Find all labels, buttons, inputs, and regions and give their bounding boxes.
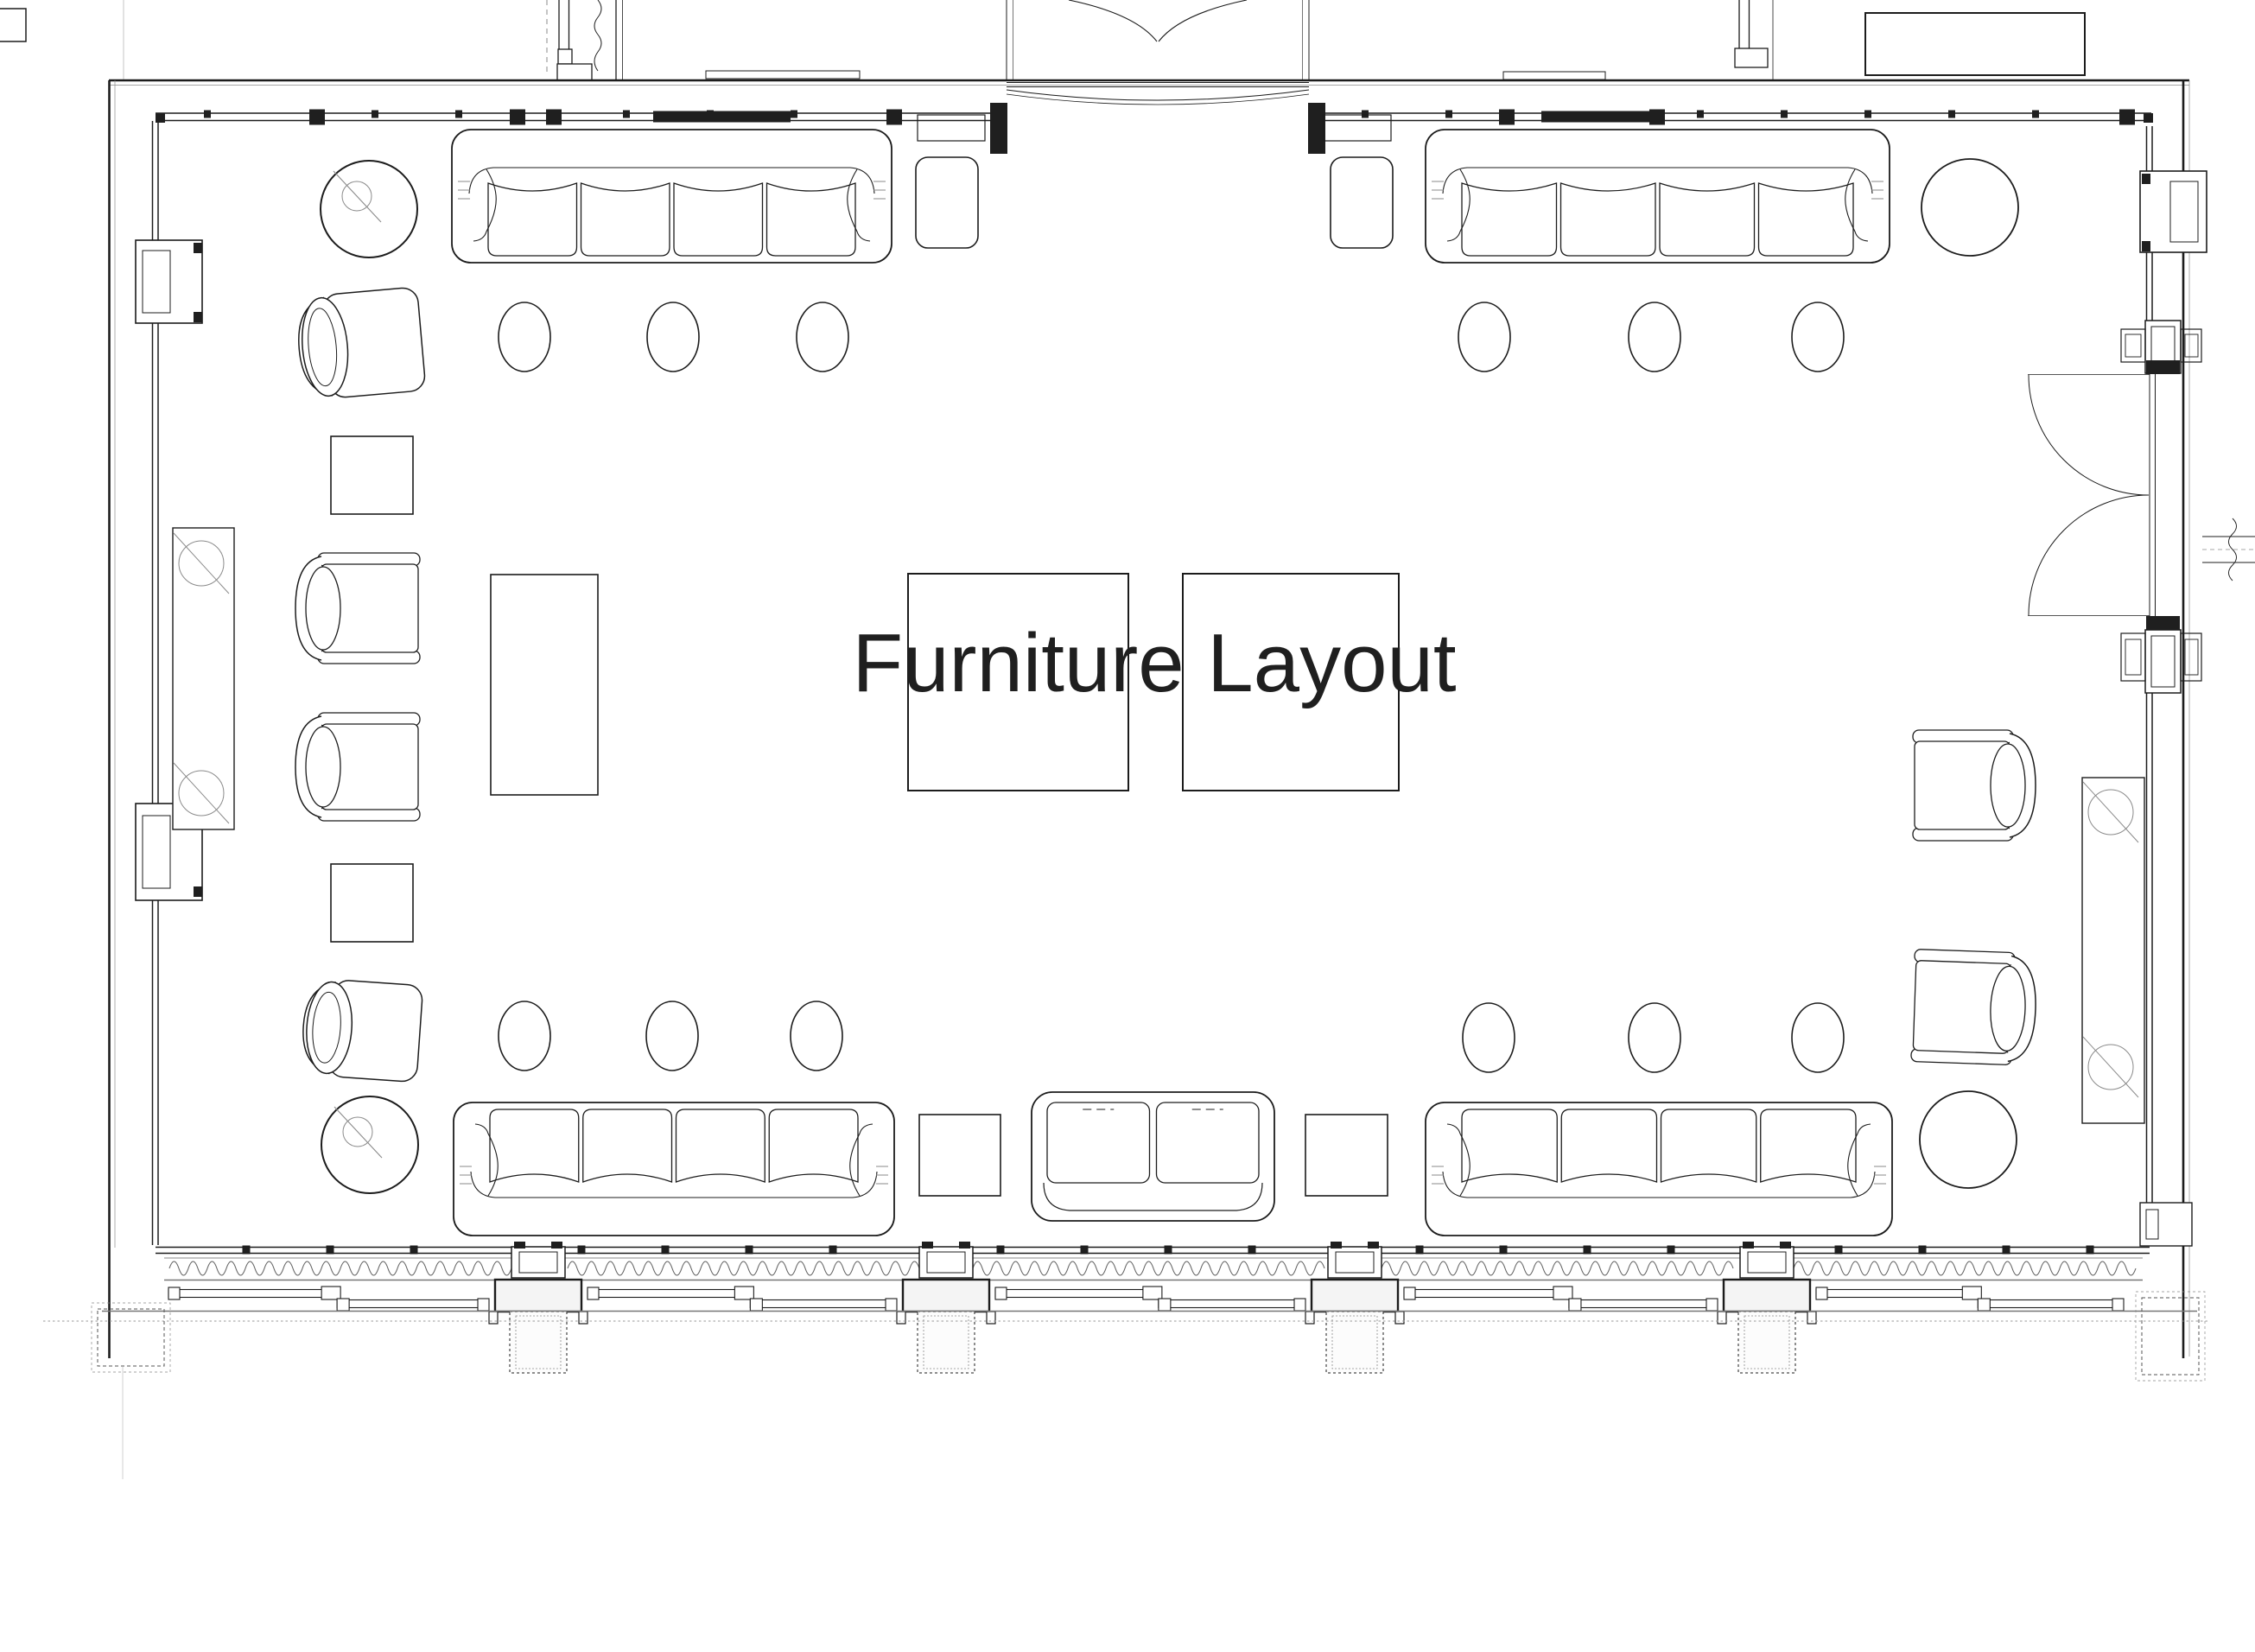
- sofa-cushion: [1561, 1109, 1656, 1182]
- side-table-square: [1305, 1115, 1388, 1196]
- top-door-jamb: [1308, 103, 1325, 154]
- jamb-wing-inner: [2125, 334, 2141, 357]
- armchair: [295, 713, 420, 821]
- side-table-square: [331, 436, 413, 514]
- door-niche: [1324, 115, 1391, 141]
- sofa-cushion: [488, 183, 577, 256]
- sofa-cushion: [1761, 1109, 1856, 1182]
- rect: [489, 1312, 498, 1324]
- rect: [903, 1280, 989, 1312]
- door-niche: [918, 115, 985, 141]
- rooftop-canopy: [1865, 13, 2085, 75]
- rect: [922, 1242, 933, 1249]
- frame-dark: [2142, 241, 2150, 251]
- rect: [1312, 1280, 1398, 1312]
- glazing-ticks-bottom: [746, 1246, 753, 1255]
- sill-frames: [1404, 1287, 1718, 1311]
- rect: [478, 1299, 489, 1311]
- rect: [1305, 1312, 1314, 1324]
- rect: [1159, 1299, 1171, 1311]
- corner-dark: [2144, 113, 2153, 123]
- stool: [1792, 1003, 1844, 1072]
- rect: [1706, 1299, 1718, 1311]
- partition-block: [558, 49, 572, 64]
- frame-dark: [194, 886, 202, 897]
- rect: [337, 1299, 349, 1311]
- jamb-wing-inner: [2125, 639, 2141, 675]
- stool: [1629, 1003, 1680, 1072]
- glazing-ticks-top: [1948, 111, 1955, 118]
- sill-frames: [168, 1287, 489, 1311]
- glazing-ticks-top: [455, 111, 462, 118]
- glazing-ticks-bottom: [1165, 1246, 1172, 1255]
- armchair: [295, 553, 420, 664]
- rect: [1780, 1242, 1791, 1249]
- foundation-pier: [1305, 1280, 1404, 1373]
- sofa-cushion: [1462, 1109, 1557, 1182]
- armchair: [1913, 730, 2036, 841]
- glazing-ticks-bottom: [1081, 1246, 1089, 1255]
- insulation-batt: [973, 1261, 1324, 1275]
- glazing-ticks-top: [2032, 111, 2039, 118]
- sill-frames: [1816, 1287, 2124, 1311]
- exterior-sill: [1503, 72, 1605, 79]
- rect: [959, 1242, 970, 1249]
- rect: [173, 528, 234, 829]
- jamb-cap-dark: [2146, 616, 2180, 630]
- glazing-ticks-bottom: [327, 1246, 334, 1255]
- barrel-chair: [295, 287, 426, 401]
- foundation-pier: [1718, 1280, 1816, 1373]
- loveseat-bottom-center: [1032, 1092, 1274, 1221]
- corner-footing: [98, 1309, 164, 1366]
- sofa-cushion: [490, 1109, 579, 1182]
- top-door-jamb: [990, 103, 1007, 154]
- sill-frames: [588, 1287, 897, 1311]
- insulation-batt: [169, 1261, 511, 1275]
- rect: [1807, 1312, 1816, 1324]
- window-frame-box: [136, 240, 202, 323]
- partition-block: [1735, 48, 1768, 67]
- rect: [995, 1290, 1157, 1298]
- loveseat-cushion: [1157, 1102, 1260, 1183]
- rect: [495, 1280, 581, 1312]
- sofa-top-left: [452, 130, 892, 263]
- glazing-ticks-top: [204, 111, 211, 118]
- sofa-cushion: [1661, 1109, 1756, 1182]
- rect: [588, 1287, 599, 1299]
- rect: [1978, 1300, 2123, 1308]
- rect: [2082, 778, 2144, 1123]
- chair-back-cushion: [306, 727, 340, 807]
- sofa-cushion: [583, 1109, 672, 1182]
- stool: [1792, 302, 1844, 372]
- foundation-pier: [489, 1280, 588, 1373]
- sofa-cushion: [1759, 183, 1854, 256]
- rect: [886, 1299, 897, 1311]
- frame-dark: [2142, 174, 2150, 184]
- glazing-ticks-top: [1697, 111, 1704, 118]
- rect: [1553, 1287, 1572, 1299]
- mullion-cap: [1649, 110, 1665, 125]
- glazing-ticks-bottom: [410, 1246, 418, 1255]
- rect: [995, 1287, 1007, 1299]
- pier-mullion: [511, 1242, 565, 1278]
- glazing-ticks-bottom: [829, 1246, 837, 1255]
- rect: [1159, 1300, 1305, 1308]
- frame-dark: [194, 312, 202, 322]
- sofa-top-right: [1426, 130, 1890, 263]
- pier-mullion: [1328, 1242, 1382, 1278]
- glazing-ticks-bottom: [2003, 1246, 2010, 1255]
- sofa-cushion: [1462, 183, 1557, 256]
- rect: [1569, 1299, 1581, 1311]
- glazing-ticks-bottom: [997, 1246, 1005, 1255]
- rect: [987, 1312, 995, 1324]
- rect: [1395, 1312, 1404, 1324]
- glazing-ticks-bottom: [1835, 1246, 1843, 1255]
- glazing-ticks-bottom: [1416, 1246, 1424, 1255]
- right-door-jamb-box: [2145, 630, 2181, 693]
- glazing-panel-dark: [1541, 111, 1652, 123]
- corner-footing: [2142, 1298, 2199, 1375]
- glazing-ticks-bottom: [578, 1246, 586, 1255]
- sofa-cushion: [769, 1109, 858, 1182]
- insulation-batt: [1382, 1261, 1733, 1275]
- stool: [647, 302, 699, 372]
- plan-title: Furniture Layout: [852, 617, 1456, 709]
- rect: [168, 1290, 335, 1298]
- rect: [897, 1312, 905, 1324]
- frame-dark: [194, 243, 202, 253]
- console-table-center: [491, 575, 598, 795]
- exterior-sill: [706, 71, 860, 79]
- mullion-cap: [1499, 110, 1515, 125]
- jamb-cap-dark: [2146, 360, 2180, 374]
- rect: [1978, 1299, 1990, 1311]
- glazing-ticks-bottom: [662, 1246, 670, 1255]
- stool: [1463, 1003, 1515, 1072]
- mullion-cap: [2119, 110, 2135, 125]
- sofa-cushion: [674, 183, 763, 256]
- stool: [791, 1001, 842, 1071]
- rect: [1404, 1287, 1415, 1299]
- rect: [1743, 1242, 1754, 1249]
- glazing-ticks-top: [707, 111, 714, 118]
- glazing-ticks-bottom: [1248, 1246, 1256, 1255]
- rect: [337, 1300, 488, 1308]
- floor-plan-page: Furniture Layout: [0, 0, 2255, 1652]
- pier-mullion: [1740, 1242, 1794, 1278]
- armchair: [1911, 950, 2037, 1066]
- rect: [750, 1300, 896, 1308]
- edge-artifact-box: [0, 9, 26, 41]
- round-table: [1920, 1091, 2017, 1188]
- glazing-ticks-top: [1445, 111, 1452, 118]
- rect: [168, 1287, 180, 1299]
- rect: [1816, 1290, 1976, 1298]
- rect: [588, 1290, 748, 1298]
- stool: [1458, 302, 1510, 372]
- glazing-ticks-top: [791, 111, 797, 118]
- glazing-ticks-bottom: [1584, 1246, 1591, 1255]
- jamb-wing-inner: [2185, 639, 2198, 675]
- floor-lamp-circle: [321, 1096, 418, 1193]
- corner-dark: [156, 113, 165, 123]
- sofa-bottom-right: [1426, 1102, 1892, 1236]
- top-door-bow: [1007, 90, 1309, 100]
- stool: [797, 302, 848, 372]
- floor-plan-canvas: Furniture Layout: [0, 0, 2255, 1652]
- side-table-square: [919, 1115, 1000, 1196]
- sill-frames: [995, 1287, 1305, 1311]
- sofa-cushion: [1660, 183, 1755, 256]
- wall-console-right: [2082, 778, 2144, 1123]
- mullion-cap: [510, 110, 525, 125]
- rect: [1404, 1290, 1567, 1298]
- stool: [646, 1001, 698, 1071]
- stool: [1629, 302, 1680, 372]
- rect: [579, 1312, 588, 1324]
- corner-footing: [92, 1303, 170, 1372]
- side-table: [1331, 157, 1393, 248]
- rect: [1724, 1280, 1810, 1312]
- chair-back-cushion: [1991, 744, 2025, 827]
- plan-geometry: [0, 0, 2255, 1479]
- floor-lamp-circle: [321, 161, 417, 257]
- side-table: [916, 157, 978, 248]
- mullion-cap: [309, 110, 325, 125]
- rect: [1143, 1287, 1162, 1299]
- rect: [551, 1242, 562, 1249]
- sofa-cushion: [1561, 183, 1656, 256]
- loveseat-cushion: [1047, 1102, 1150, 1183]
- glazing-ticks-top: [372, 111, 378, 118]
- glazing-ticks-top: [1864, 111, 1871, 118]
- mullion-cap: [886, 110, 902, 125]
- break-squiggle: [594, 0, 601, 71]
- rect: [734, 1287, 753, 1299]
- rect: [1962, 1287, 1981, 1299]
- stool: [499, 302, 550, 372]
- chair-back-cushion: [306, 567, 340, 650]
- pier-mullion: [919, 1242, 973, 1278]
- stool: [499, 1001, 550, 1071]
- sofa-cushion: [676, 1109, 765, 1182]
- round-table: [1922, 159, 2018, 256]
- sofa-cushion: [581, 183, 670, 256]
- barrel-chair: [300, 977, 422, 1082]
- rect: [2112, 1299, 2124, 1311]
- jamb-wing-inner: [2185, 334, 2198, 357]
- foundation-pier: [897, 1280, 995, 1373]
- glazing-ticks-top: [1781, 111, 1788, 118]
- corner-footing: [2136, 1292, 2205, 1381]
- right-door-swing: [2029, 375, 2149, 495]
- rect: [1569, 1300, 1717, 1308]
- glazing-ticks-bottom: [1500, 1246, 1508, 1255]
- rect: [321, 1287, 340, 1299]
- glazing-ticks-top: [623, 111, 630, 118]
- insulation-batt: [1794, 1261, 2136, 1275]
- rect: [1294, 1299, 1305, 1311]
- rect: [1331, 1242, 1342, 1249]
- jamb-wing: [2121, 633, 2145, 681]
- right-door-swing: [2029, 495, 2149, 615]
- glazing-ticks-top: [1362, 111, 1369, 118]
- sofa-bottom-left: [454, 1102, 894, 1236]
- glazing-ticks-bottom: [1919, 1246, 1927, 1255]
- rect: [514, 1242, 525, 1249]
- glazing-ticks-bottom: [1667, 1246, 1675, 1255]
- glazing-ticks-bottom: [2087, 1246, 2094, 1255]
- sofa-cushion: [767, 183, 856, 256]
- rect: [1738, 1312, 1795, 1373]
- insulation-batt: [568, 1261, 919, 1275]
- rect: [750, 1299, 762, 1311]
- mullion-cap: [546, 110, 562, 125]
- glazing-panel-dark: [653, 111, 791, 123]
- glazing-ticks-bottom: [243, 1246, 251, 1255]
- rect: [1368, 1242, 1379, 1249]
- wall-console-left: [173, 528, 234, 829]
- top-door-leaf-arcs: [1069, 0, 1247, 41]
- partition-step: [557, 64, 592, 80]
- rect: [1718, 1312, 1726, 1324]
- rect: [1816, 1287, 1827, 1299]
- side-table-square: [331, 864, 413, 942]
- top-door-bow: [1007, 94, 1309, 105]
